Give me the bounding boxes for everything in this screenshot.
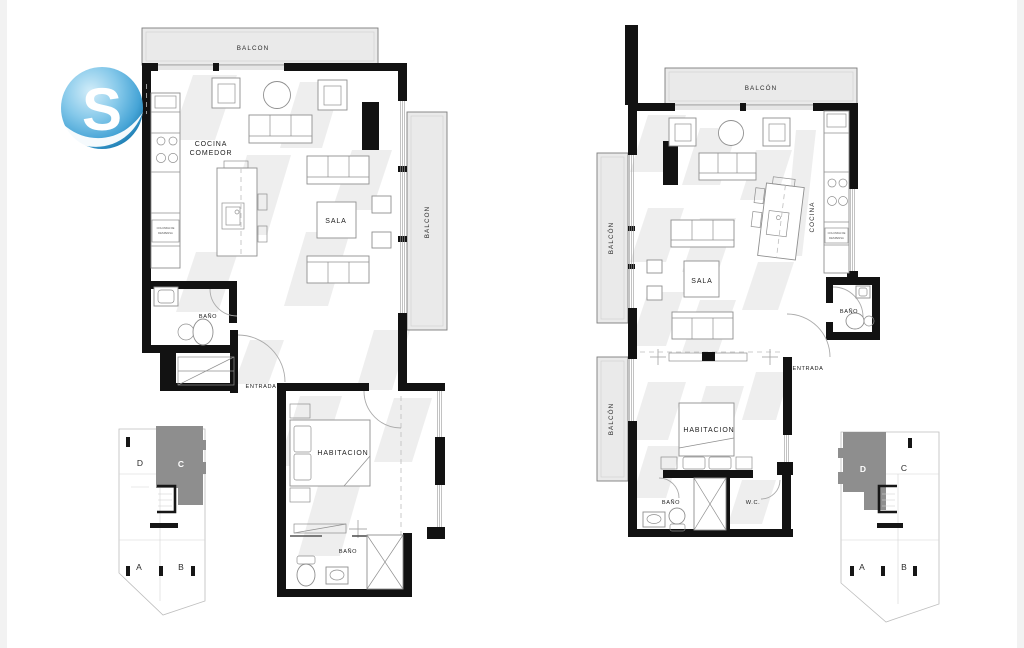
living-label: SALA: [325, 218, 347, 225]
bathroom-upper: BAÑO: [833, 286, 874, 329]
bedroom-label: HABITACION: [317, 450, 368, 457]
toilet-icon: [297, 556, 315, 586]
dresser: [178, 357, 234, 385]
entrance: ENTRADA: [787, 314, 830, 372]
logo: S: [60, 67, 143, 149]
logo-letter: S: [82, 76, 122, 143]
balcony-right-label: BALCON: [424, 206, 431, 239]
bathroom-upper-label: BAÑO: [199, 313, 217, 320]
bathroom-lower-label: BAÑO: [662, 499, 680, 506]
kitchen-island: [748, 175, 805, 260]
armchair: [763, 118, 790, 146]
balcony-top-label: BALCON: [237, 45, 270, 52]
kitchen-counter: COLUMNA DE DESPENSA: [151, 93, 180, 268]
balcony-top: BALCON: [142, 28, 378, 65]
left-floor-plan: BALCON BALCON: [142, 28, 447, 597]
round-table: [264, 82, 291, 109]
balcony-left-lower-label: BALCÓN: [606, 403, 615, 436]
sofa: [307, 256, 369, 283]
right-key-plan: D C A B: [838, 432, 939, 622]
shower: [694, 478, 726, 530]
building-core: [150, 486, 178, 528]
bathroom-upper-label: BAÑO: [840, 308, 858, 315]
kitchen-label-line1: COCINA: [195, 141, 228, 148]
balcony-left-lower: BALCÓN: [597, 357, 628, 481]
keyplan-unit-c: C: [901, 463, 907, 473]
sofa: [671, 220, 734, 247]
armchair: [318, 80, 347, 110]
floorplan-page: BALCON BALCON: [0, 0, 1024, 648]
floor-plans-canvas: BALCON BALCON: [0, 0, 1024, 648]
keyplan-unit-b: B: [901, 562, 907, 572]
toilet-icon: [846, 313, 874, 329]
svg-text:DESPENSA: DESPENSA: [158, 231, 173, 235]
sink-icon: [326, 567, 348, 584]
keyplan-unit-a: A: [136, 562, 142, 572]
armchair: [669, 118, 696, 146]
right-floor-plan: BALCÓN BALCÓN BALCÓN: [597, 25, 880, 537]
sink-icon: [643, 512, 665, 527]
kitchen-label: COCINA: [809, 201, 816, 232]
living-label: SALA: [691, 278, 713, 285]
toilet-icon: [178, 319, 213, 345]
entrance-label: ENTRADA: [793, 366, 824, 372]
sofa: [307, 156, 369, 184]
bedroom-label: HABITACION: [683, 427, 734, 434]
sink-icon: [154, 287, 178, 306]
left-key-plan: D C A B: [119, 426, 206, 615]
balcony-top-label: BALCÓN: [745, 83, 778, 92]
balcony-right: BALCON: [407, 112, 447, 330]
sink-icon: [856, 286, 870, 298]
entrance-label: ENTRADA: [246, 384, 277, 390]
keyplan-unit-c-highlighted: C: [178, 459, 184, 469]
side-table: [372, 196, 391, 213]
svg-text:DESPENSA: DESPENSA: [829, 236, 844, 240]
keyplan-unit-b: B: [178, 562, 184, 572]
side-table: [372, 232, 391, 248]
keyplan-unit-d: D: [137, 458, 143, 468]
tv-wall-column: [362, 102, 379, 150]
armchair: [212, 78, 240, 108]
shower: [367, 535, 403, 589]
kitchen-label-line2: COMEDOR: [190, 150, 233, 157]
svg-text:COLUMNA DE: COLUMNA DE: [157, 226, 175, 230]
tv-wall-column: [663, 141, 678, 185]
sofa: [249, 115, 312, 143]
bathroom-lower-label: BAÑO: [339, 548, 357, 555]
sofa: [672, 312, 733, 339]
balcony-left-upper-label: BALCÓN: [606, 222, 615, 255]
side-table: [647, 260, 662, 273]
round-table: [719, 121, 744, 146]
keyplan-unit-d-highlighted: D: [860, 464, 866, 474]
wc-label: W.C.: [746, 500, 761, 506]
side-table: [647, 286, 662, 300]
svg-text:COLUMNA DE: COLUMNA DE: [828, 231, 846, 235]
balcony-left-upper: BALCÓN: [597, 153, 628, 323]
balcony-top: BALCÓN: [665, 68, 857, 105]
keyplan-unit-a: A: [859, 562, 865, 572]
sofa: [699, 153, 756, 180]
toilet-icon: [669, 508, 685, 531]
